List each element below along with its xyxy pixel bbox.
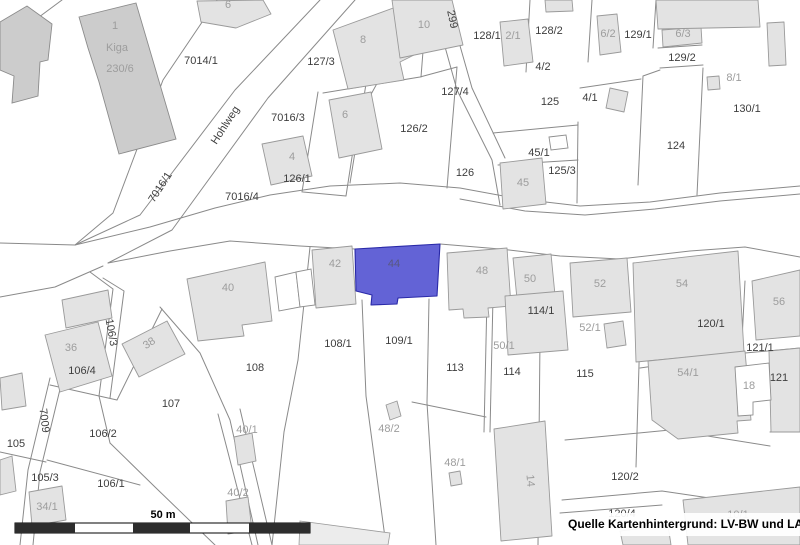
map-label: 114 <box>503 366 521 378</box>
scale-bar-segment <box>15 523 75 533</box>
map-label: 34/1 <box>36 501 57 513</box>
scale-bar-label: 50 m <box>150 509 175 521</box>
parcel-line <box>653 0 656 48</box>
map-label: 125 <box>541 96 559 108</box>
building[interactable] <box>648 351 751 439</box>
map-label: 108/1 <box>324 338 352 350</box>
building[interactable] <box>449 471 462 486</box>
map-label: 7016/4 <box>225 191 259 203</box>
map-label: 14 <box>523 474 536 487</box>
map-label: 6 <box>225 0 231 11</box>
map-label: 4/1 <box>582 92 597 104</box>
map-label: 126/1 <box>283 173 311 185</box>
map-label: 1 <box>112 20 118 32</box>
parcel-line <box>580 79 641 88</box>
building[interactable] <box>312 246 356 308</box>
map-label: 106/4 <box>68 365 96 377</box>
building[interactable] <box>633 251 744 362</box>
map-label: 6 <box>342 109 348 121</box>
map-label: 126/2 <box>400 123 428 135</box>
map-label: 44 <box>388 258 400 270</box>
parcel-line <box>565 430 770 446</box>
map-label: 105 <box>7 438 25 450</box>
building[interactable] <box>767 22 786 66</box>
parcel-line <box>577 122 578 203</box>
map-label: 6/3 <box>675 28 690 40</box>
map-label: 120/2 <box>611 471 639 483</box>
map-label: 50 <box>524 273 536 285</box>
building[interactable] <box>234 433 256 465</box>
parcel-line <box>412 402 486 417</box>
map-label: 40 <box>222 282 234 294</box>
building[interactable] <box>447 248 511 318</box>
map-label: 230/6 <box>106 63 134 75</box>
map-label: 127/3 <box>307 56 335 68</box>
map-label: 114/1 <box>528 305 555 317</box>
map-label: 50/1 <box>493 340 514 352</box>
map-label: 113 <box>446 362 464 374</box>
scale-bar-segment <box>249 523 310 533</box>
map-label: 7016/1 <box>146 170 174 205</box>
parcel-line <box>588 0 592 62</box>
parcel-line <box>493 125 578 133</box>
map-label: 45 <box>517 177 529 189</box>
building[interactable] <box>604 321 626 348</box>
building[interactable] <box>769 348 800 432</box>
map-label: 105/3 <box>31 472 59 484</box>
parcel-line <box>638 70 660 185</box>
map-label: 8/1 <box>726 72 741 84</box>
map-attribution: Quelle Kartenhintergrund: LV-BW und LAD <box>568 513 800 536</box>
building[interactable] <box>0 6 52 103</box>
building[interactable] <box>122 321 185 377</box>
map-label: 130/1 <box>733 103 761 115</box>
map-label: 7014/1 <box>184 55 218 67</box>
map-label: 115 <box>576 368 594 380</box>
map-label: 45/1 <box>528 147 549 159</box>
map-label: 40/2 <box>227 487 248 499</box>
map-label: 128/1 <box>473 30 501 42</box>
map-label: 121/1 <box>746 342 774 354</box>
map-label: 106/1 <box>97 478 125 490</box>
building[interactable] <box>187 262 272 341</box>
map-label: 7009 <box>37 408 52 434</box>
map-label: 54 <box>676 278 688 290</box>
building[interactable] <box>0 456 16 495</box>
map-label: 4 <box>289 151 295 163</box>
map-label: 2/1 <box>505 30 520 42</box>
scale-bar-segment <box>133 523 190 533</box>
map-label: 56 <box>773 296 785 308</box>
map-label: 125/3 <box>548 165 576 177</box>
map-label: 109/1 <box>385 335 413 347</box>
map-label: 129/2 <box>668 52 696 64</box>
road-edge <box>0 183 800 245</box>
parcel-line <box>490 297 493 432</box>
parcel-line <box>660 65 703 68</box>
map-label: 48/1 <box>444 457 465 469</box>
map-label: 6/2 <box>600 28 615 40</box>
map-label: 120/1 <box>697 318 725 330</box>
map-label: 108 <box>246 362 264 374</box>
building[interactable] <box>329 92 382 158</box>
building[interactable] <box>197 0 271 28</box>
road-edge <box>0 266 103 297</box>
map-label: 42 <box>329 258 341 270</box>
map-label: 10 <box>418 19 430 31</box>
map-label: 107 <box>162 398 180 410</box>
map-label: 128/2 <box>535 25 563 37</box>
map-label: 4/2 <box>535 61 550 73</box>
cadastral-map[interactable]: 1Kiga230/667014/1127/3810299128/12/1128/… <box>0 0 800 545</box>
parcel-wedge <box>299 521 390 545</box>
parcel-line <box>47 460 140 485</box>
map-label: 121 <box>770 372 788 384</box>
map-label: 52 <box>594 278 606 290</box>
map-label: 127/4 <box>441 86 469 98</box>
building-kiga[interactable] <box>79 3 176 154</box>
parcel-line <box>427 299 436 545</box>
map-label: 7016/3 <box>271 112 305 124</box>
map-label: 52/1 <box>579 322 600 334</box>
map-label: 106/2 <box>89 428 117 440</box>
map-label: 18 <box>743 380 755 392</box>
building[interactable] <box>45 322 112 392</box>
building[interactable] <box>545 0 573 12</box>
building[interactable] <box>656 0 760 29</box>
cadastral-map-canvas[interactable]: 1Kiga230/667014/1127/3810299128/12/1128/… <box>0 0 800 545</box>
building[interactable] <box>549 135 568 150</box>
building[interactable] <box>0 373 26 410</box>
map-label: 126 <box>456 167 474 179</box>
building[interactable] <box>386 401 401 420</box>
map-label: 48/2 <box>378 423 399 435</box>
map-label: 54/1 <box>677 367 698 379</box>
map-label: 48 <box>476 265 488 277</box>
map-label: 124 <box>667 140 685 152</box>
highlighted-building-44[interactable] <box>355 244 440 305</box>
map-label: 40/1 <box>236 424 257 436</box>
map-label: 106/3 <box>103 318 120 347</box>
building[interactable] <box>500 19 533 66</box>
map-label: 36 <box>65 342 77 354</box>
building[interactable] <box>494 421 552 541</box>
building[interactable] <box>606 88 628 112</box>
parcel-line <box>697 68 703 195</box>
map-label: 8 <box>360 34 366 46</box>
map-label: 129/1 <box>624 29 652 41</box>
building[interactable] <box>707 76 720 90</box>
map-label: Kiga <box>106 42 129 54</box>
